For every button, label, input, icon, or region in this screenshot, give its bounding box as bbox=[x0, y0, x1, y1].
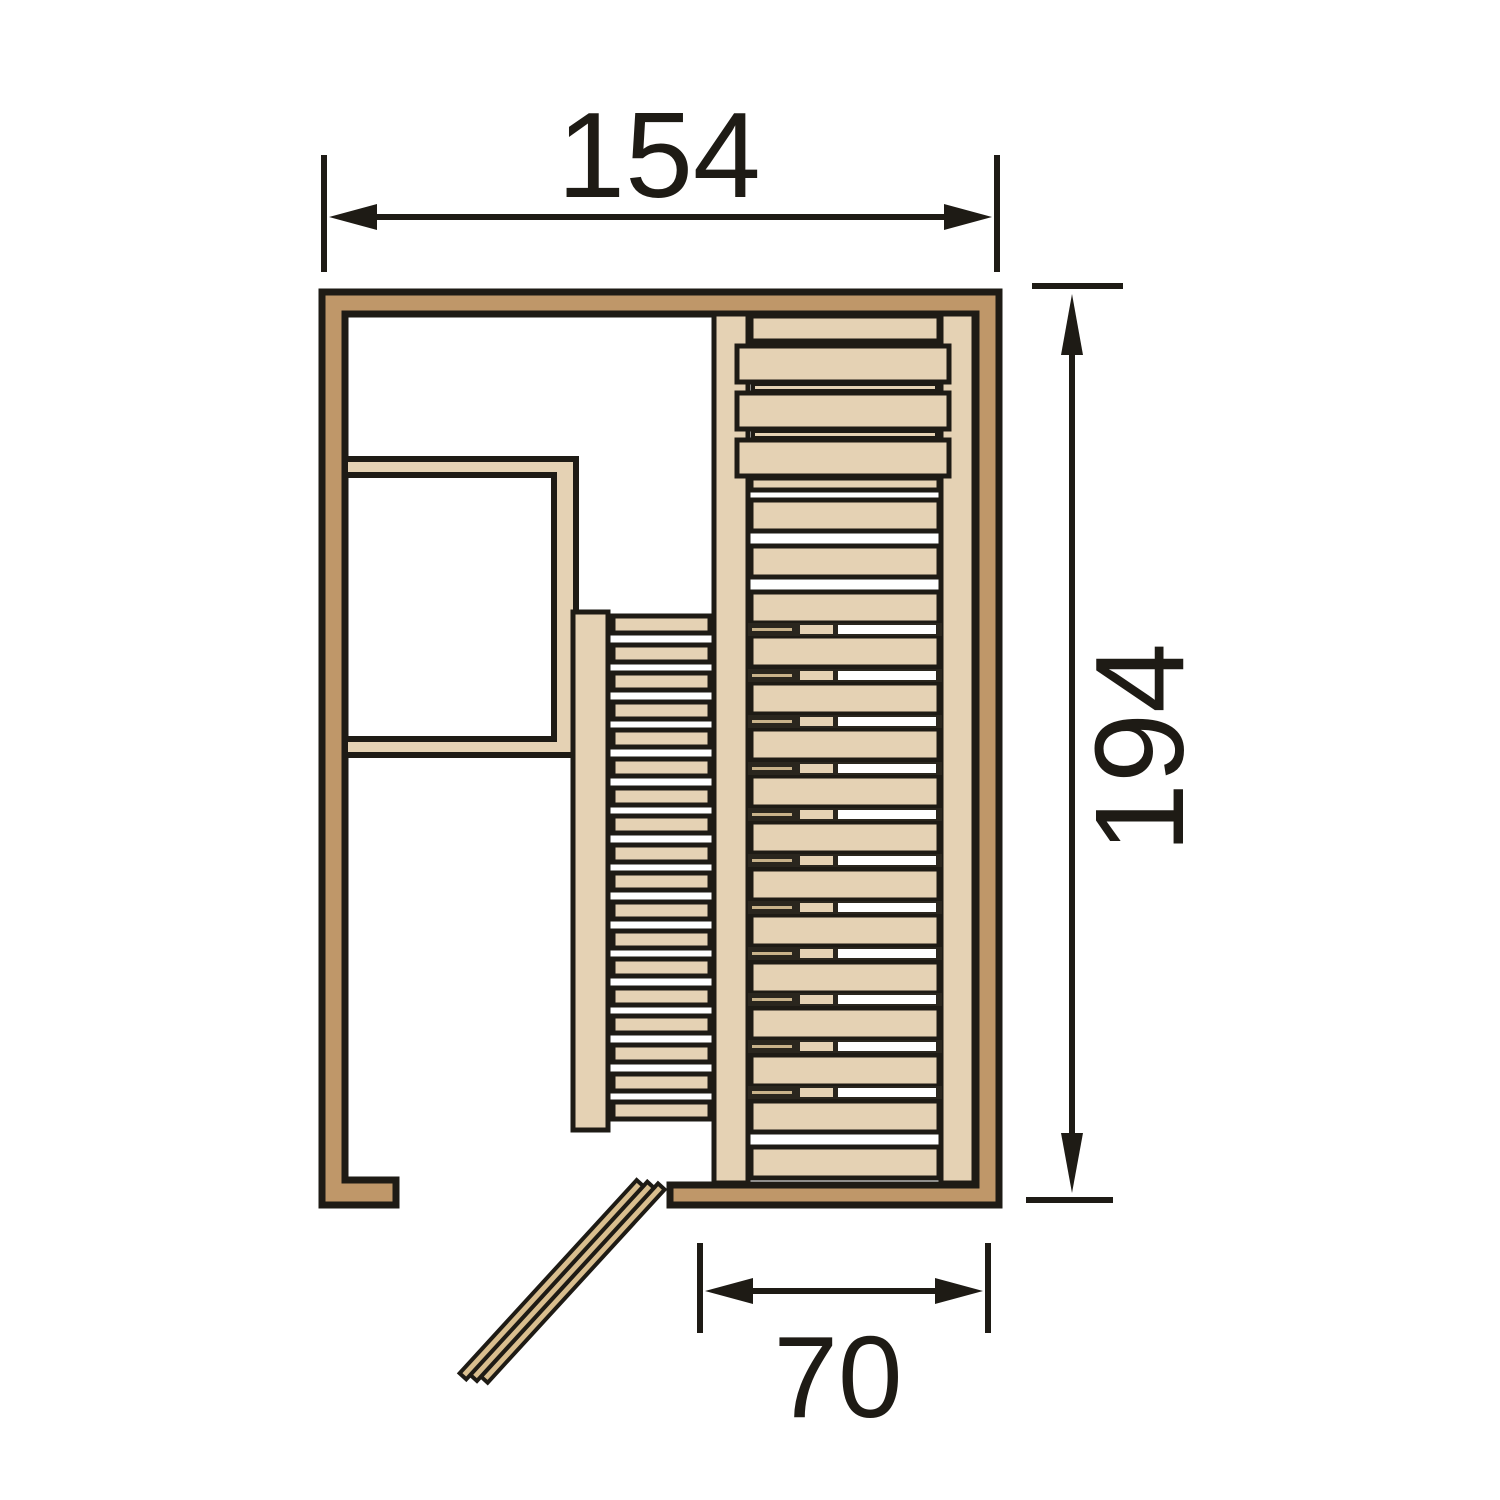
arrow-right-icon bbox=[944, 204, 992, 230]
arrow-right-icon bbox=[935, 1278, 983, 1304]
arrow-left-icon bbox=[705, 1278, 753, 1304]
door-board bbox=[460, 1180, 644, 1379]
backrest-board bbox=[737, 346, 949, 382]
middle-bench bbox=[573, 612, 710, 1130]
main-bench-slat bbox=[751, 478, 939, 490]
door-board bbox=[481, 1183, 665, 1382]
arrow-left-icon bbox=[329, 204, 377, 230]
backrest-board bbox=[737, 393, 949, 429]
door-board bbox=[470, 1182, 654, 1381]
dimension-height-label: 194 bbox=[1069, 643, 1210, 853]
dimension-height: 194 bbox=[1026, 286, 1210, 1200]
door-leaf bbox=[460, 1171, 665, 1391]
main-bench-header-board bbox=[751, 316, 939, 341]
middle-bench-rail bbox=[573, 612, 608, 1130]
arrow-down-icon bbox=[1061, 1133, 1083, 1193]
backrest-connector bbox=[753, 431, 937, 438]
diagram-canvas: 154 194 70 bbox=[0, 0, 1500, 1500]
backrest-connector bbox=[753, 384, 937, 391]
dimension-width: 154 bbox=[324, 87, 997, 272]
dimension-door: 70 bbox=[700, 1243, 988, 1442]
main-bench bbox=[714, 314, 974, 1183]
main-bench-slats bbox=[751, 500, 939, 1178]
arrow-up-icon bbox=[1061, 294, 1083, 355]
sauna-floor-plan: 154 194 70 bbox=[0, 0, 1500, 1500]
backrest-board bbox=[737, 440, 949, 476]
heater-enclosure-frame bbox=[345, 459, 576, 755]
middle-bench-slats bbox=[613, 616, 710, 1119]
dimension-door-label: 70 bbox=[773, 1312, 902, 1442]
dimension-width-label: 154 bbox=[557, 87, 761, 223]
